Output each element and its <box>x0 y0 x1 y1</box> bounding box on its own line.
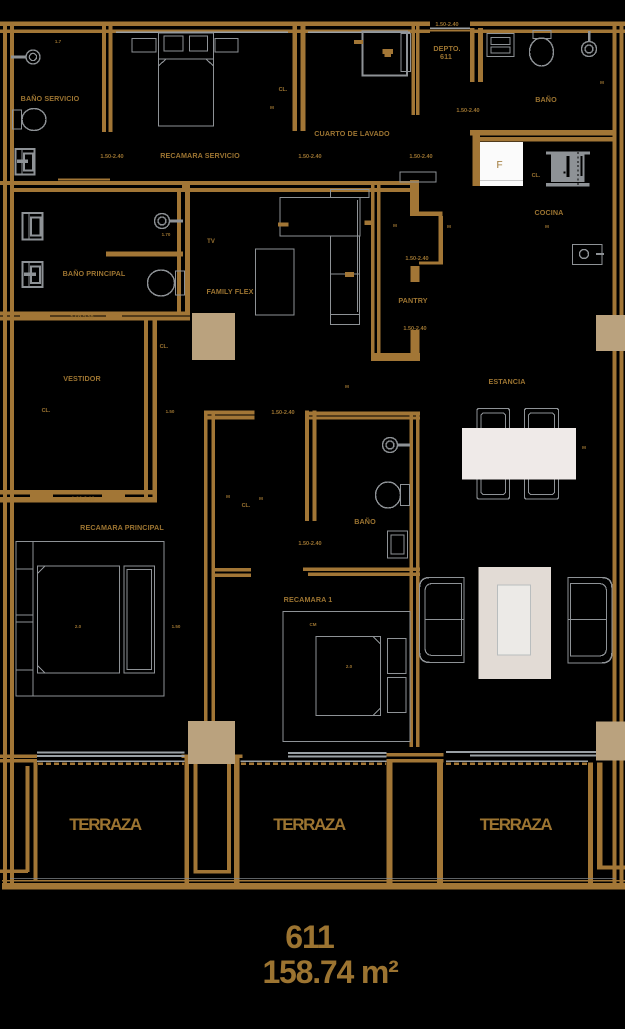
svg-text:CL.: CL. <box>242 503 251 509</box>
svg-text:1.7: 1.7 <box>55 39 62 44</box>
svg-text:BAÑO: BAÑO <box>535 95 557 104</box>
svg-text:RECAMARA PRINCIPAL: RECAMARA PRINCIPAL <box>80 523 164 532</box>
svg-text:1.50-2.40: 1.50-2.40 <box>100 154 123 160</box>
svg-text:1.50: 1.50 <box>166 409 175 414</box>
svg-text:CUARTO DE LAVADO: CUARTO DE LAVADO <box>314 129 390 138</box>
svg-text:CL.: CL. <box>532 173 541 179</box>
svg-text:TERRAZA: TERRAZA <box>69 815 142 834</box>
svg-text:1.50-2.10: 1.50-2.10 <box>70 315 93 321</box>
svg-text:BAÑO SERVICIO: BAÑO SERVICIO <box>21 94 80 103</box>
svg-text:1.50-2.40: 1.50-2.40 <box>409 154 432 160</box>
svg-text:M: M <box>270 105 274 110</box>
svg-text:FAMILY FLEX: FAMILY FLEX <box>206 287 253 296</box>
svg-text:1.50-2.40: 1.50-2.40 <box>298 154 321 160</box>
svg-text:CL.: CL. <box>42 408 51 414</box>
svg-text:PANTRY: PANTRY <box>398 296 427 305</box>
svg-text:1.50: 1.50 <box>172 624 181 629</box>
svg-text:M: M <box>259 496 263 501</box>
svg-text:RECAMARA 1: RECAMARA 1 <box>284 595 333 604</box>
svg-text:1.50-2.40: 1.50-2.40 <box>298 541 321 547</box>
svg-text:1.70: 1.70 <box>162 232 171 237</box>
svg-text:1.50-2.40: 1.50-2.40 <box>456 108 479 114</box>
svg-text:CL.: CL. <box>160 344 169 350</box>
svg-text:BAÑO: BAÑO <box>354 517 376 526</box>
svg-text:BAÑO PRINCIPAL: BAÑO PRINCIPAL <box>63 269 126 278</box>
svg-text:1.50-2.40: 1.50-2.40 <box>271 410 294 416</box>
svg-text:ESTANCIA: ESTANCIA <box>488 377 525 386</box>
svg-text:M: M <box>345 384 349 389</box>
svg-text:2.0: 2.0 <box>75 624 82 629</box>
svg-text:2.0: 2.0 <box>346 664 353 669</box>
svg-text:CM: CM <box>310 622 317 627</box>
svg-text:TERRAZA: TERRAZA <box>480 815 553 834</box>
svg-text:1.50-2.40: 1.50-2.40 <box>405 256 428 262</box>
svg-text:VESTIDOR: VESTIDOR <box>63 374 101 383</box>
svg-text:M: M <box>226 494 230 499</box>
svg-text:611: 611 <box>285 919 334 955</box>
svg-text:F: F <box>496 160 502 171</box>
svg-text:M: M <box>393 223 397 228</box>
svg-text:TERRAZA: TERRAZA <box>273 815 346 834</box>
svg-text:M: M <box>447 224 451 229</box>
svg-text:M: M <box>600 80 604 85</box>
svg-text:611: 611 <box>440 52 452 61</box>
svg-text:1.50-2.40: 1.50-2.40 <box>403 326 426 332</box>
svg-text:RECAMARA SERVICIO: RECAMARA SERVICIO <box>160 151 240 160</box>
svg-text:COCINA: COCINA <box>535 208 564 217</box>
svg-text:158.74 m²: 158.74 m² <box>262 954 398 990</box>
svg-text:CL.: CL. <box>279 87 288 93</box>
svg-text:M: M <box>545 224 549 229</box>
svg-text:M: M <box>582 445 586 450</box>
svg-text:1.90-2.10: 1.90-2.10 <box>71 497 94 503</box>
svg-text:TV: TV <box>207 239 215 245</box>
svg-text:1.50-2.40: 1.50-2.40 <box>435 22 458 28</box>
